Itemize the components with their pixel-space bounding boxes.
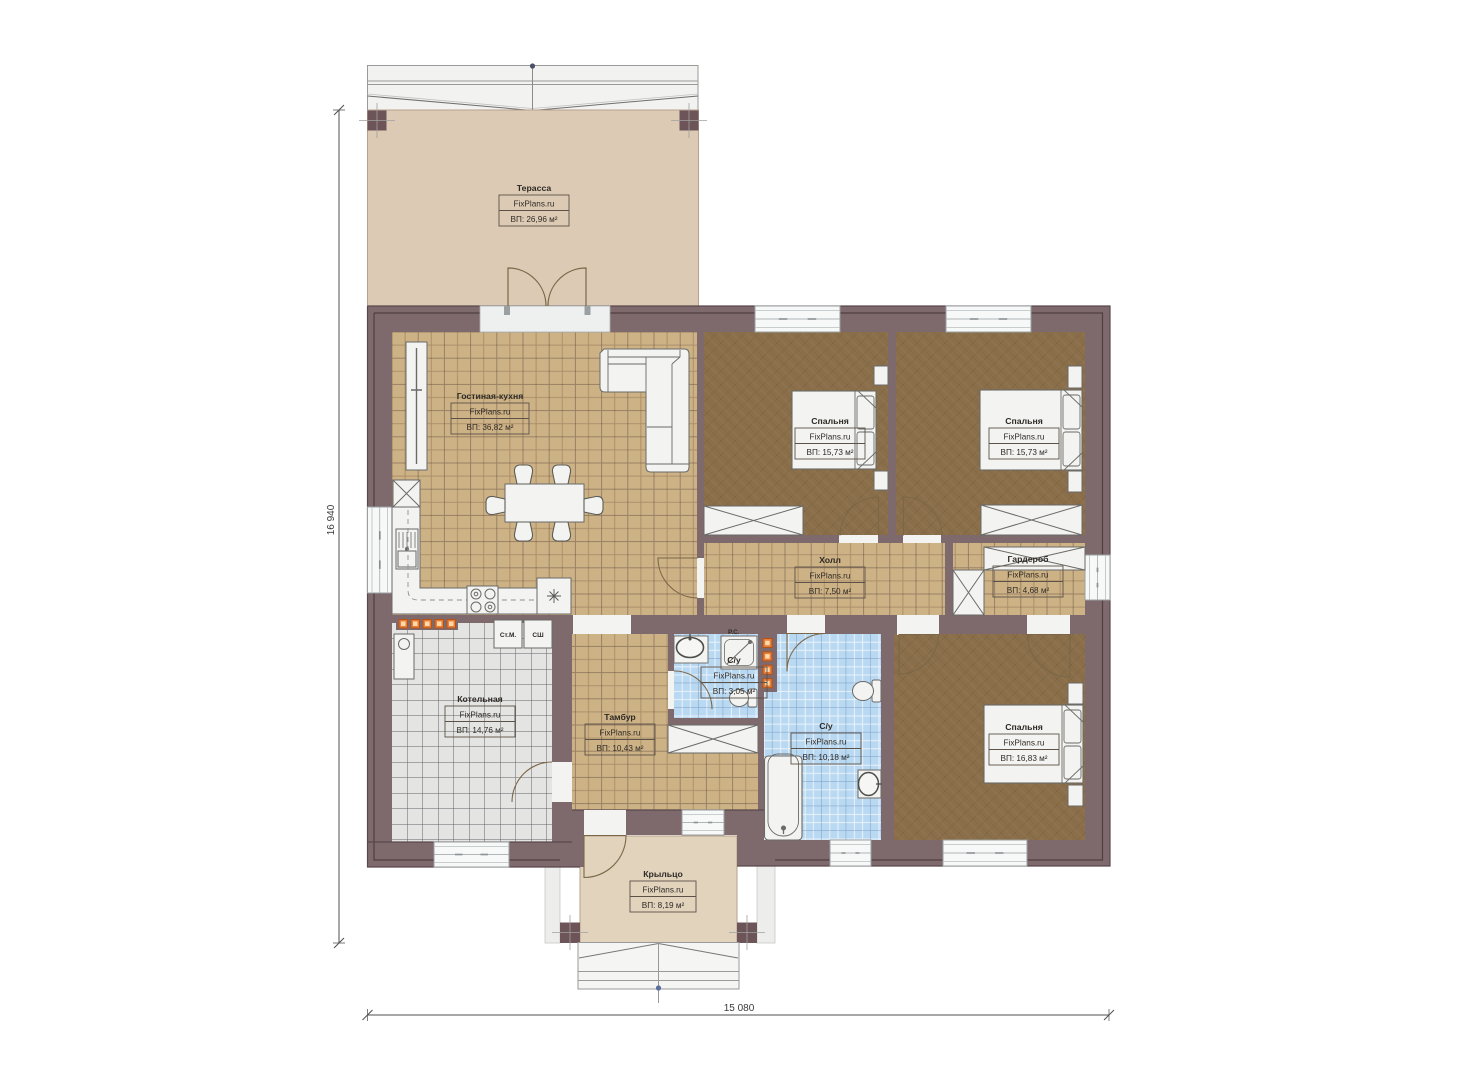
svg-text:Терасса: Терасса — [517, 183, 552, 193]
svg-text:FixPlans.ru: FixPlans.ru — [810, 433, 851, 442]
svg-text:ВП: 10,18 м²: ВП: 10,18 м² — [802, 753, 849, 762]
svg-text:FixPlans.ru: FixPlans.ru — [514, 200, 555, 209]
svg-text:Р.С.: Р.С. — [728, 629, 740, 636]
svg-text:FixPlans.ru: FixPlans.ru — [1004, 739, 1045, 748]
svg-text:ВП: 15,73 м²: ВП: 15,73 м² — [1000, 448, 1047, 457]
svg-text:ВП: 26,96 м²: ВП: 26,96 м² — [510, 215, 557, 224]
svg-text:ВП: 14,76 м²: ВП: 14,76 м² — [456, 726, 503, 735]
svg-text:Тамбур: Тамбур — [604, 712, 636, 722]
svg-text:Ст.М.: Ст.М. — [500, 632, 517, 639]
svg-text:ВП: 3,05 м²: ВП: 3,05 м² — [713, 687, 756, 696]
svg-text:Спальня: Спальня — [1005, 722, 1043, 732]
svg-text:FixPlans.ru: FixPlans.ru — [1008, 571, 1049, 580]
svg-text:ВП: 16,83 м²: ВП: 16,83 м² — [1000, 754, 1047, 763]
svg-text:ВП: 15,73 м²: ВП: 15,73 м² — [806, 448, 853, 457]
svg-text:Гардероб: Гардероб — [1007, 554, 1049, 564]
svg-text:15 080: 15 080 — [724, 1003, 755, 1014]
svg-text:FixPlans.ru: FixPlans.ru — [714, 672, 755, 681]
svg-text:С/у: С/у — [727, 655, 741, 665]
svg-text:ВП: 7,50 м²: ВП: 7,50 м² — [809, 587, 852, 596]
svg-text:FixPlans.ru: FixPlans.ru — [1004, 433, 1045, 442]
svg-text:ВП: 8,19 м²: ВП: 8,19 м² — [642, 901, 685, 910]
svg-text:СШ: СШ — [532, 632, 544, 639]
svg-text:Крыльцо: Крыльцо — [643, 869, 683, 879]
svg-text:FixPlans.ru: FixPlans.ru — [810, 572, 851, 581]
svg-text:Спальня: Спальня — [1005, 416, 1043, 426]
svg-text:16 940: 16 940 — [326, 504, 337, 535]
svg-text:FixPlans.ru: FixPlans.ru — [460, 711, 501, 720]
svg-text:FixPlans.ru: FixPlans.ru — [470, 408, 511, 417]
svg-text:ВП: 4,68 м²: ВП: 4,68 м² — [1007, 586, 1050, 595]
svg-text:Спальня: Спальня — [811, 416, 849, 426]
svg-text:FixPlans.ru: FixPlans.ru — [806, 738, 847, 747]
svg-text:ВП: 36,82 м²: ВП: 36,82 м² — [466, 423, 513, 432]
svg-text:FixPlans.ru: FixPlans.ru — [600, 729, 641, 738]
svg-text:FixPlans.ru: FixPlans.ru — [643, 886, 684, 895]
svg-text:Холл: Холл — [819, 555, 841, 565]
svg-text:Котельная: Котельная — [457, 694, 503, 704]
svg-text:Гостиная-кухня: Гостиная-кухня — [457, 391, 524, 401]
svg-text:С/у: С/у — [819, 721, 833, 731]
svg-text:ВП: 10,43 м²: ВП: 10,43 м² — [596, 744, 643, 753]
